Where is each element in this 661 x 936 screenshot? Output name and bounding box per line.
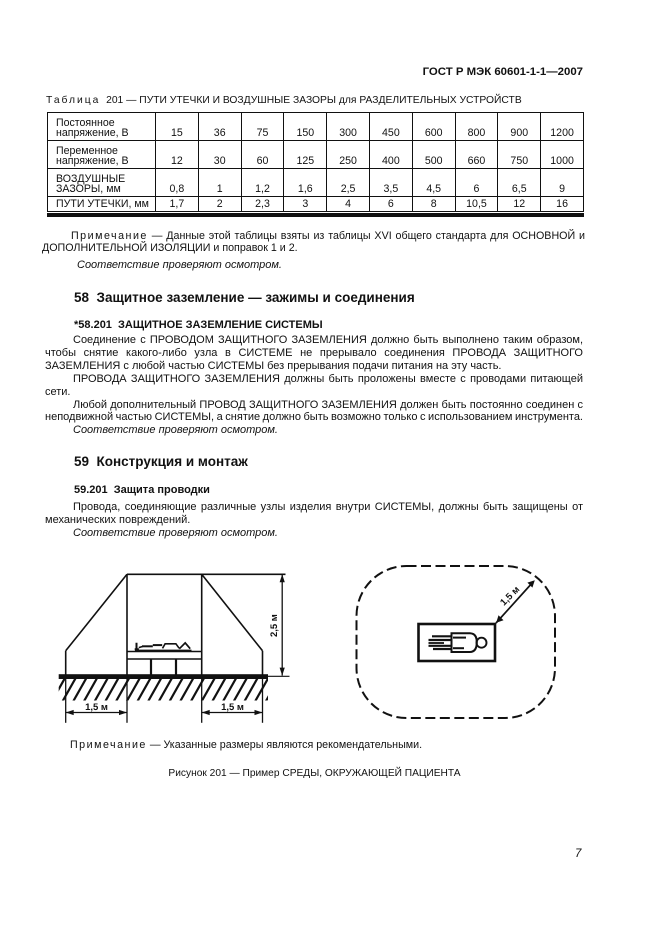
svg-text:2,5 м: 2,5 м [269,614,280,637]
svg-text:1,5 м: 1,5 м [221,702,244,713]
svg-text:1,5 м: 1,5 м [498,584,522,608]
svg-text:1,5 м: 1,5 м [85,702,108,713]
